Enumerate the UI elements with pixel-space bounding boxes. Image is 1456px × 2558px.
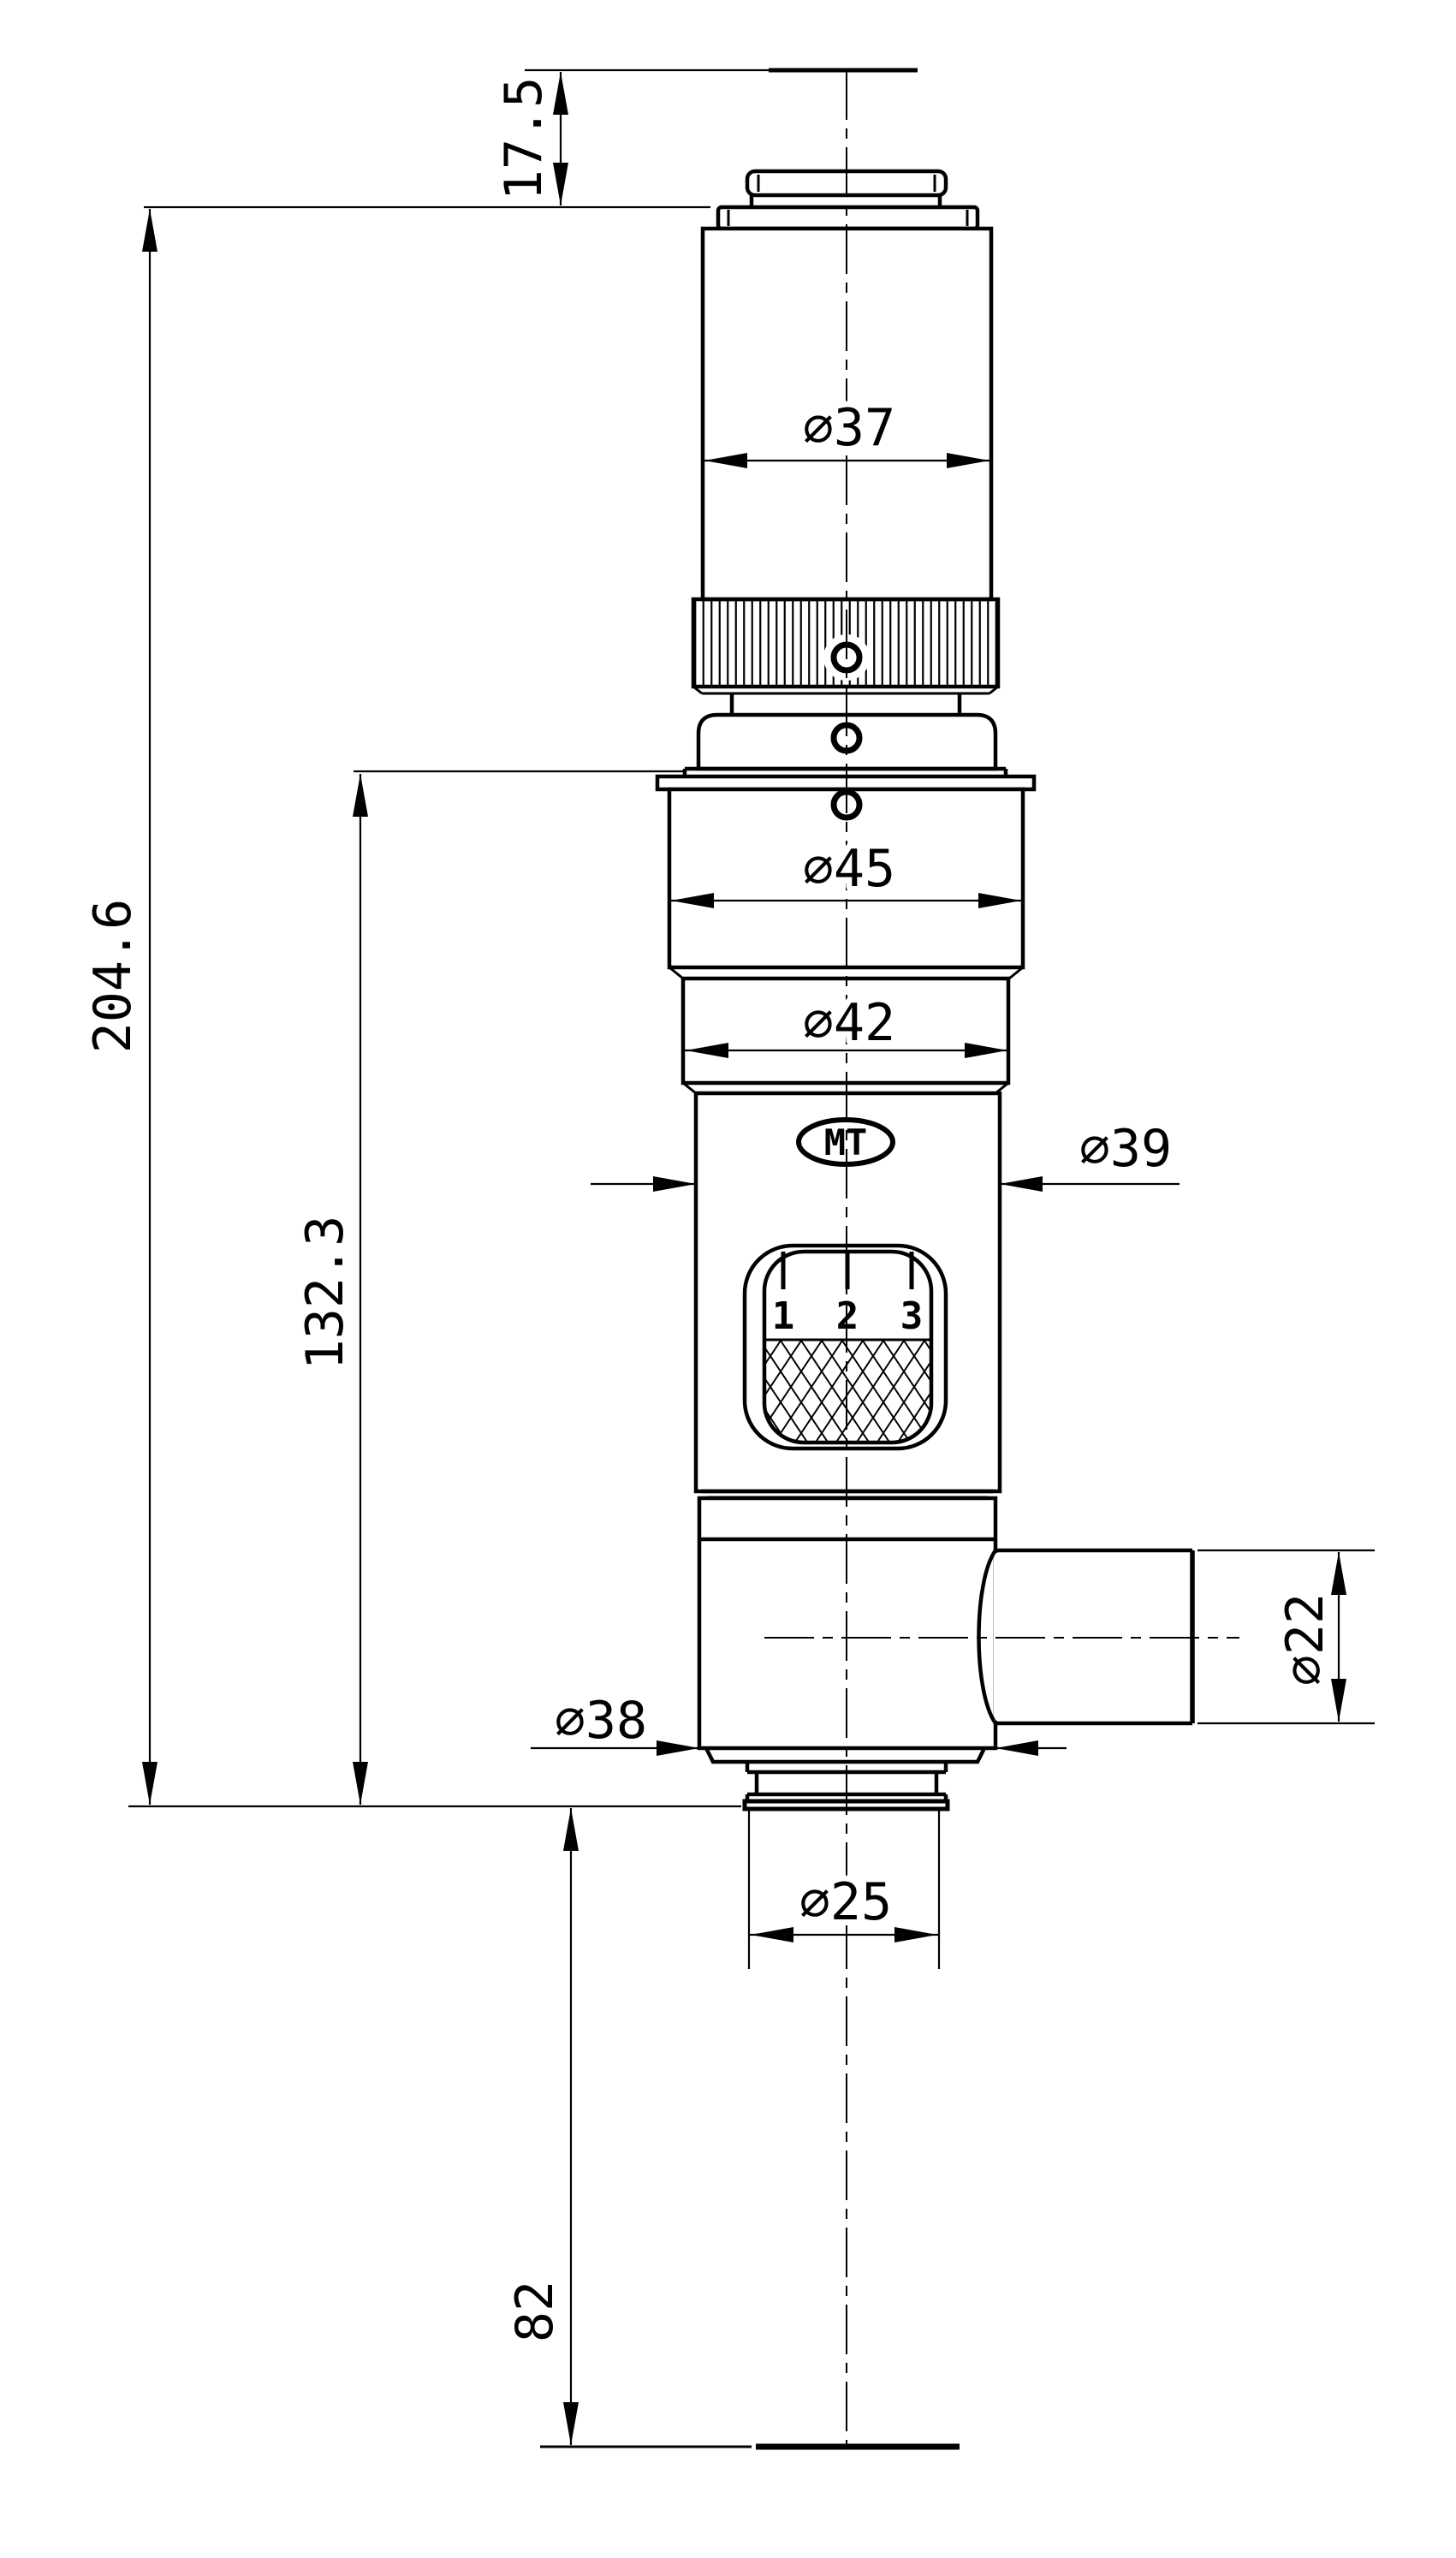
dim-17-5-label: 17.5	[494, 77, 554, 201]
magnification-window: 1 2 3	[745, 1246, 946, 1449]
dim-dia25-label: ∅25	[799, 1872, 892, 1932]
scale-number-1: 1	[772, 1294, 795, 1338]
scale-number-3: 3	[900, 1294, 924, 1338]
knurled-selector-hatch	[764, 1340, 931, 1443]
dim-204-6-label: 204.6	[83, 899, 143, 1054]
dim-dia38-label: ∅38	[555, 1691, 647, 1751]
dim-82-label: 82	[505, 2281, 565, 2342]
dim-dia22-label: ∅22	[1275, 1593, 1335, 1686]
dim-dia39-label: ∅39	[1079, 1119, 1172, 1179]
dim-dia45-label: ∅45	[803, 839, 895, 899]
dim-dia37-label: ∅37	[803, 398, 895, 458]
technical-drawing-canvas: MT 1 2 3	[0, 0, 1456, 2558]
dim-132-3-label: 132.3	[295, 1216, 355, 1371]
dim-dia42-label: ∅42	[803, 993, 895, 1053]
eyepiece-flange	[718, 207, 978, 229]
drawing-page: MT 1 2 3	[0, 0, 1456, 2558]
